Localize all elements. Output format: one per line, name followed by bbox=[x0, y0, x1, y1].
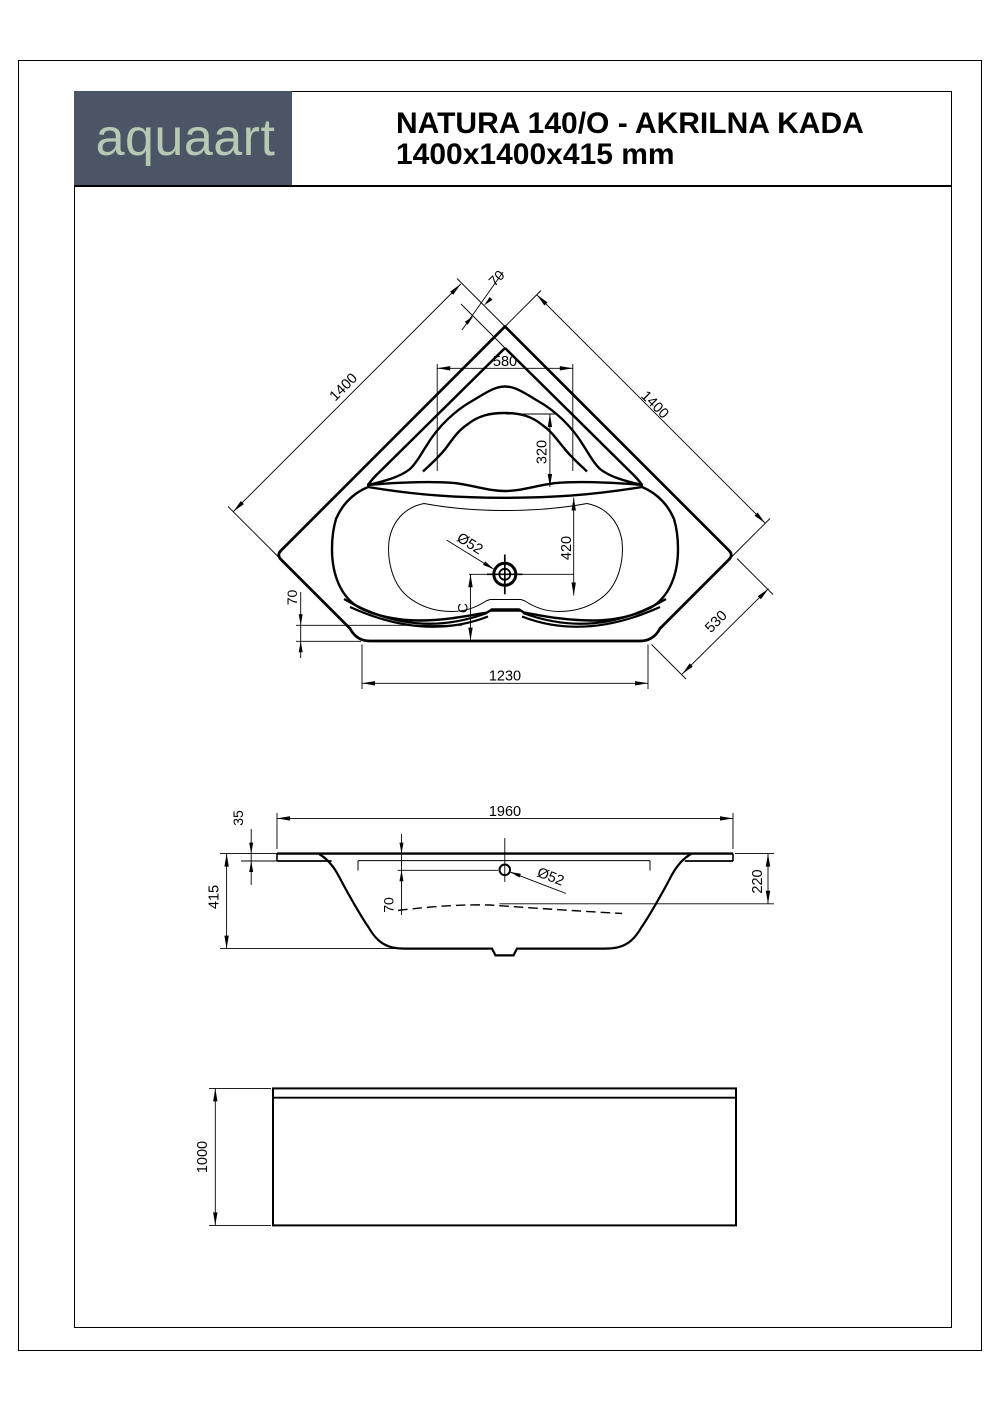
svg-text:1000: 1000 bbox=[195, 1141, 211, 1173]
svg-text:C: C bbox=[455, 603, 471, 613]
svg-text:420: 420 bbox=[559, 536, 575, 560]
svg-text:70: 70 bbox=[381, 897, 397, 913]
svg-text:320: 320 bbox=[535, 440, 551, 464]
svg-text:70: 70 bbox=[284, 590, 300, 606]
svg-text:530: 530 bbox=[702, 608, 730, 636]
svg-text:415: 415 bbox=[207, 885, 223, 909]
svg-text:70: 70 bbox=[485, 267, 507, 289]
svg-text:220: 220 bbox=[750, 869, 766, 893]
svg-text:35: 35 bbox=[230, 810, 246, 826]
svg-text:1230: 1230 bbox=[489, 669, 521, 685]
svg-text:1400: 1400 bbox=[637, 388, 671, 422]
svg-text:Ø52: Ø52 bbox=[535, 865, 566, 890]
svg-text:1960: 1960 bbox=[489, 804, 521, 820]
svg-text:1400: 1400 bbox=[327, 370, 361, 404]
svg-text:580: 580 bbox=[493, 354, 517, 370]
